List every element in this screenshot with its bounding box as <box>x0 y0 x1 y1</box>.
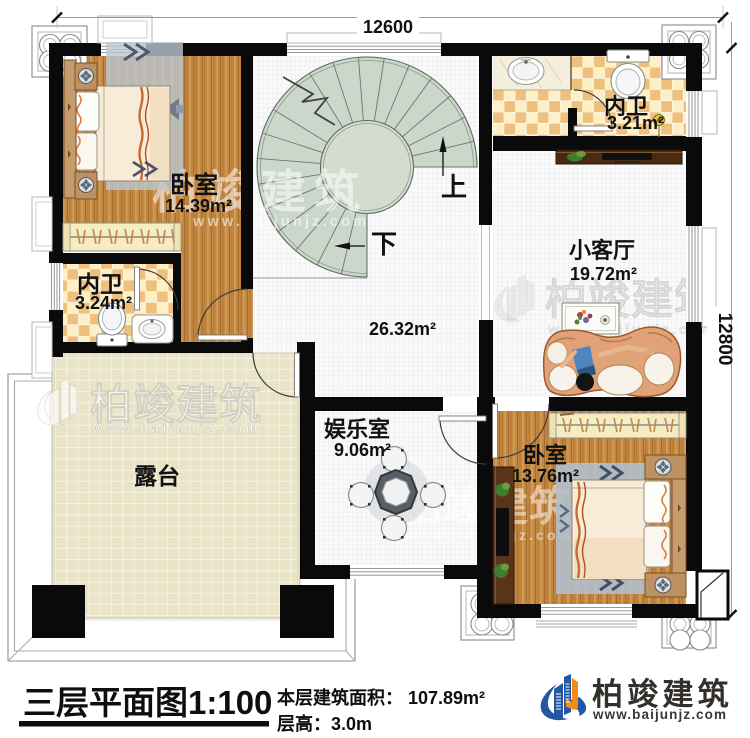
svg-text:9.06m²: 9.06m² <box>334 440 391 460</box>
svg-text:12800: 12800 <box>714 313 735 366</box>
svg-text:3.24m²: 3.24m² <box>75 293 132 313</box>
svg-text:13.76m²: 13.76m² <box>512 466 579 486</box>
svg-text:层高：3.0m: 层高：3.0m <box>277 713 372 734</box>
svg-text:卧室: 卧室 <box>523 443 567 468</box>
svg-text:三层平面图1:100: 三层平面图1:100 <box>23 684 272 721</box>
svg-text:露台: 露台 <box>134 463 180 489</box>
svg-text:www.baijunjz.com: www.baijunjz.com <box>91 420 261 436</box>
svg-text:26.32m²: 26.32m² <box>369 319 436 339</box>
svg-text:www.baijunjz.com: www.baijunjz.com <box>192 214 369 230</box>
svg-text:19.72m²: 19.72m² <box>570 264 637 284</box>
svg-text:本层建筑面积： 107.89m²: 本层建筑面积： 107.89m² <box>277 687 485 708</box>
svg-text:小客厅: 小客厅 <box>569 238 635 263</box>
svg-text:12600: 12600 <box>363 17 413 37</box>
svg-text:www.baijunjz.com: www.baijunjz.com <box>592 707 727 722</box>
svg-text:下: 下 <box>371 229 397 259</box>
svg-text:3.21m²: 3.21m² <box>607 113 664 133</box>
svg-text:娱乐室: 娱乐室 <box>324 417 390 442</box>
svg-text:14.39m²: 14.39m² <box>165 196 232 216</box>
svg-text:卧室: 卧室 <box>170 171 218 199</box>
svg-text:上: 上 <box>441 172 467 202</box>
